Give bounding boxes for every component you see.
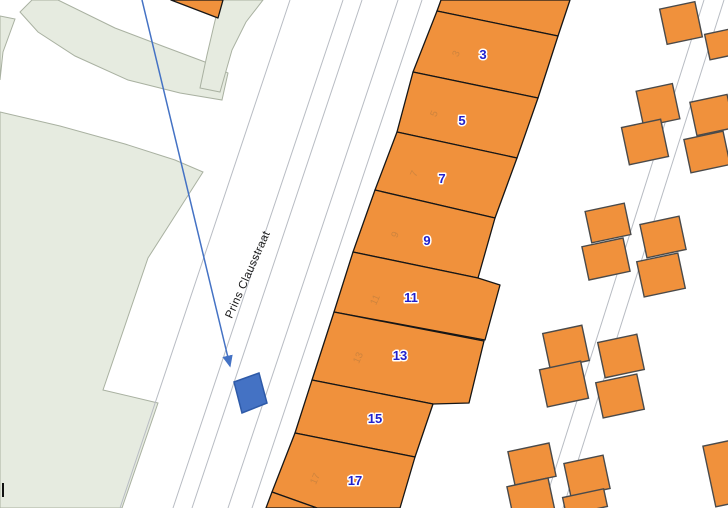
house-number-15: 15 xyxy=(368,411,382,426)
building-2[interactable] xyxy=(705,28,728,60)
building-1[interactable] xyxy=(660,2,703,45)
house-number-3: 3 xyxy=(479,47,486,62)
building-14[interactable] xyxy=(596,374,645,418)
park-main xyxy=(0,112,203,508)
building-5[interactable] xyxy=(690,94,728,135)
park-band xyxy=(20,0,228,100)
parcel-corner-building[interactable] xyxy=(171,0,223,18)
house-number-5: 5 xyxy=(458,113,465,128)
building-6[interactable] xyxy=(684,131,728,173)
house-number-9: 9 xyxy=(423,233,430,248)
map-canvas[interactable]: 3355779911111313151717Prins Clausstraat xyxy=(0,0,728,508)
building-9[interactable] xyxy=(640,216,686,258)
park-wedge xyxy=(0,16,15,80)
building-7[interactable] xyxy=(585,203,631,243)
building-12[interactable] xyxy=(540,361,589,407)
building-10[interactable] xyxy=(637,253,686,297)
building-13[interactable] xyxy=(598,334,645,378)
map-viewport[interactable]: 3355779911111313151717Prins Clausstraat xyxy=(0,0,728,508)
house-number-11: 11 xyxy=(404,290,418,305)
building-19[interactable] xyxy=(703,439,728,507)
house-number-7: 7 xyxy=(438,171,445,186)
house-number-13: 13 xyxy=(393,348,407,363)
building-4[interactable] xyxy=(621,119,668,164)
street-name-label: Prins Clausstraat xyxy=(224,229,274,320)
house-number-17: 17 xyxy=(348,473,362,488)
building-11[interactable] xyxy=(543,325,590,369)
building-8[interactable] xyxy=(582,238,630,280)
